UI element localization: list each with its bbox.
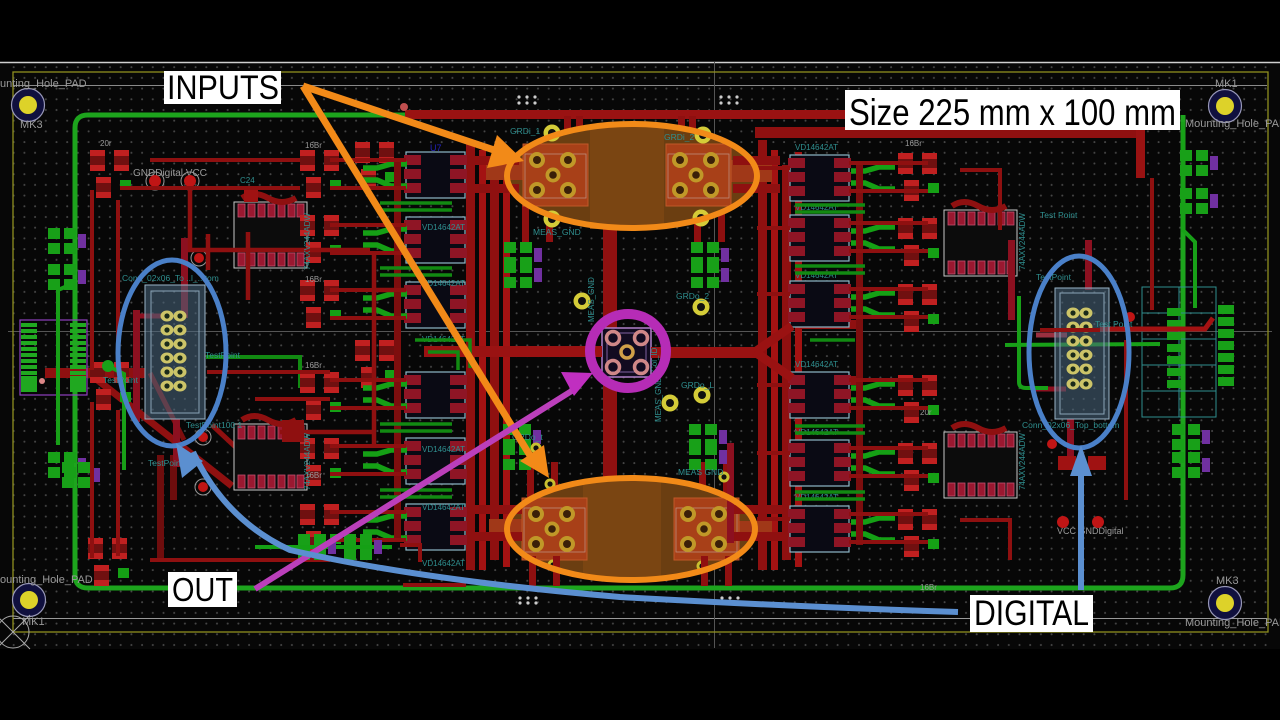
svg-text:MEAS_GND: MEAS_GND	[654, 377, 663, 422]
svg-text:GRDi_2: GRDi_2	[664, 132, 695, 142]
svg-text:GRDo_L: GRDo_L	[681, 380, 714, 390]
svg-text:VD14642AT: VD14642AT	[422, 503, 465, 512]
svg-text:C24: C24	[240, 176, 255, 185]
svg-text:Test Point: Test Point	[1040, 210, 1078, 220]
svg-text:16Br: 16Br	[305, 275, 322, 284]
svg-text:MK3: MK3	[20, 119, 43, 131]
svg-text:MEAS_GND: MEAS_GND	[587, 277, 596, 322]
svg-text:INPUTS: INPUTS	[167, 69, 279, 107]
svg-text:MEAS_GND: MEAS_GND	[533, 227, 581, 237]
svg-text:74AXV244ADW: 74AXV244ADW	[1018, 433, 1027, 490]
svg-text:VD14642AT: VD14642AT	[422, 445, 465, 454]
svg-text:TestPoint: TestPoint	[1036, 272, 1072, 282]
svg-text:Mounting_Hole_PAD: Mounting_Hole_PAD	[1185, 118, 1280, 130]
svg-text:Conn_02x06_Top_bottom: Conn_02x06_Top_bottom	[1022, 420, 1119, 430]
svg-text:MEAS GND: MEAS GND	[678, 467, 723, 477]
svg-text:GRDi_1: GRDi_1	[510, 126, 541, 136]
svg-text:DIGITAL: DIGITAL	[974, 594, 1089, 633]
svg-text:TestPoint100 1: TestPoint100 1	[186, 420, 243, 430]
svg-text:MK3: MK3	[1216, 575, 1239, 587]
svg-text:16Br: 16Br	[305, 141, 322, 150]
svg-text:16Br: 16Br	[920, 583, 937, 592]
svg-text:16Br: 16Br	[305, 361, 322, 370]
svg-text:74AXV244ADW: 74AXV244ADW	[303, 433, 312, 490]
svg-text:ounting_Hole_PAD: ounting_Hole_PAD	[0, 574, 93, 586]
svg-text:MK1: MK1	[1215, 78, 1238, 90]
svg-text:VD14642AT: VD14642AT	[795, 360, 838, 369]
svg-text:TestPoint: TestPoint	[148, 458, 184, 468]
svg-text:VCC GNDDigital: VCC GNDDigital	[1057, 526, 1124, 536]
svg-text:74AXV244ADW: 74AXV244ADW	[1018, 213, 1027, 270]
svg-text:VD14642AT: VD14642AT	[422, 223, 465, 232]
svg-text:20r: 20r	[100, 139, 112, 148]
svg-text:unting_Hole_PAD: unting_Hole_PAD	[0, 78, 87, 90]
svg-text:74AXV244ADW: 74AXV244ADW	[303, 213, 312, 270]
svg-text:VD14642AT: VD14642AT	[422, 559, 465, 568]
svg-text:VD14642AT: VD14642AT	[795, 143, 838, 152]
svg-text:OUT: OUT	[172, 571, 233, 608]
svg-text:Size 225 mm x 100 mm: Size 225 mm x 100 mm	[849, 92, 1176, 133]
svg-text:Mounting_Hole_PAD: Mounting_Hole_PAD	[1185, 617, 1280, 629]
svg-text:16Br: 16Br	[905, 139, 922, 148]
svg-text:U7: U7	[430, 143, 442, 153]
svg-text:TestPoint: TestPoint	[205, 350, 241, 360]
svg-text:GRDo_2: GRDo_2	[676, 291, 709, 301]
